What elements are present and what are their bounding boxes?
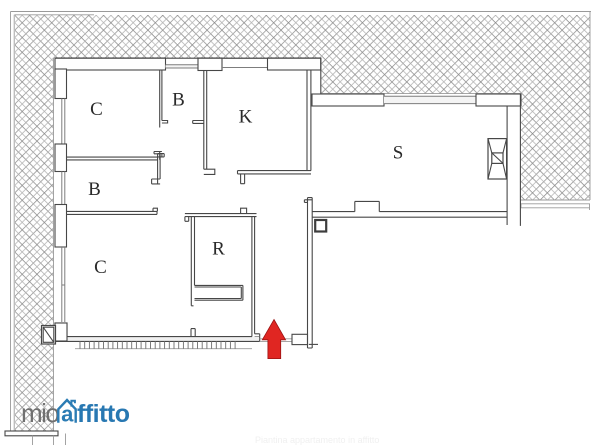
svg-text:B: B (172, 90, 185, 111)
svg-text:Piantina appartamento in affit: Piantina appartamento in affitto (255, 435, 379, 445)
svg-text:mio: mio (21, 398, 59, 428)
svg-text:a: a (61, 402, 74, 427)
svg-text:B: B (88, 179, 101, 200)
svg-text:S: S (393, 143, 404, 164)
svg-text:ffitto: ffitto (77, 400, 130, 428)
svg-text:C: C (94, 257, 107, 278)
svg-text:C: C (90, 99, 103, 120)
svg-text:R: R (212, 239, 225, 260)
svg-text:K: K (239, 107, 253, 128)
